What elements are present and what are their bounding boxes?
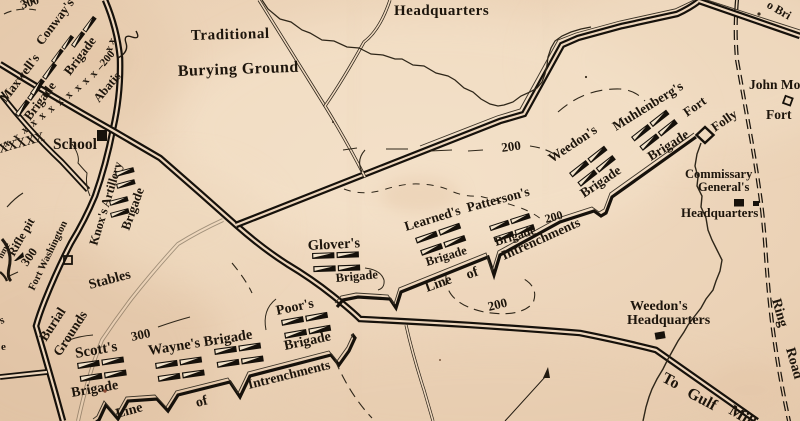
svg-text:School: School bbox=[53, 136, 98, 153]
svg-text:Fort: Fort bbox=[766, 107, 792, 122]
svg-text:Headquarters: Headquarters bbox=[681, 205, 758, 220]
svg-text:e: e bbox=[1, 341, 6, 353]
svg-text:200: 200 bbox=[500, 137, 521, 155]
svg-text:Weedon's: Weedon's bbox=[630, 299, 688, 314]
svg-text:John Mo: John Mo bbox=[749, 77, 800, 92]
svg-text:Glover's: Glover's bbox=[307, 235, 360, 254]
svg-text:General's: General's bbox=[698, 180, 750, 194]
svg-text:Headquarters: Headquarters bbox=[394, 3, 489, 19]
svg-text:Headquarters: Headquarters bbox=[627, 313, 711, 328]
svg-text:Traditional: Traditional bbox=[191, 26, 270, 44]
svg-text:Commissary: Commissary bbox=[685, 167, 753, 181]
